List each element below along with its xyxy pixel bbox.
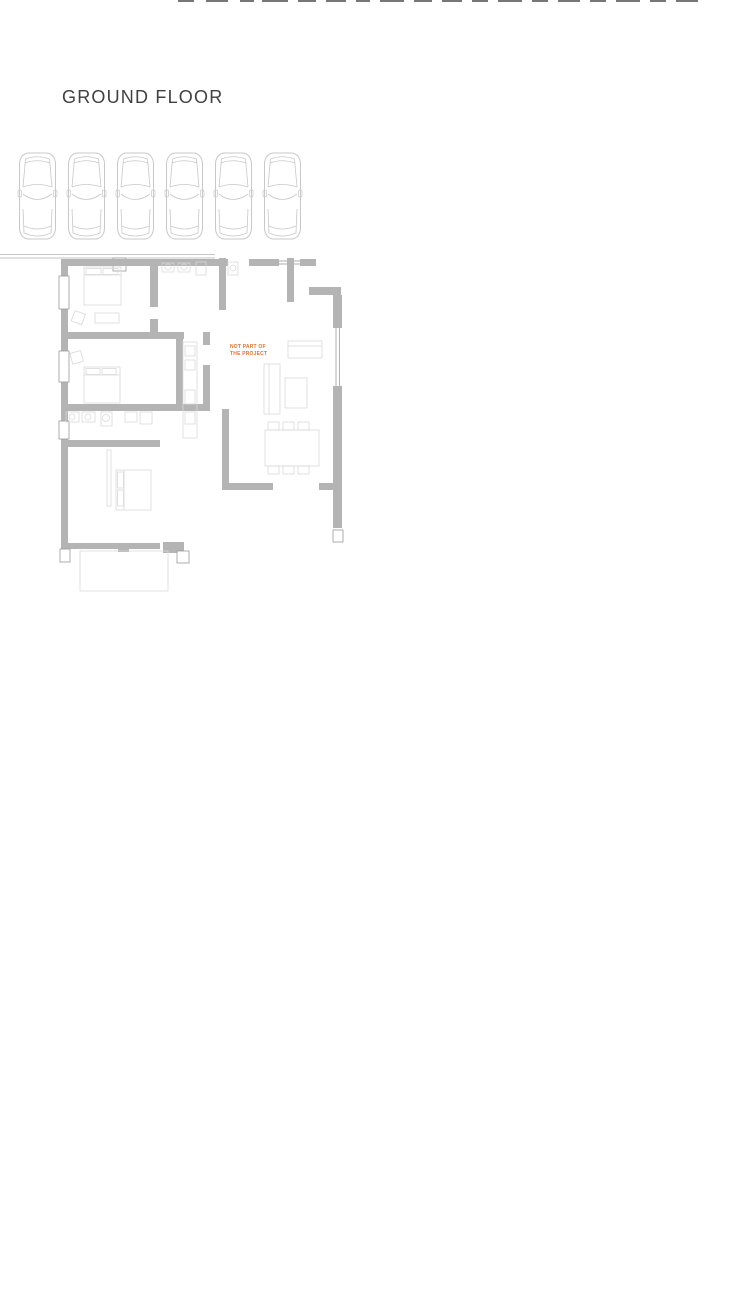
svg-text:THE PROJECT: THE PROJECT — [230, 351, 267, 357]
svg-text:NOT PART OF: NOT PART OF — [230, 344, 266, 350]
svg-text:GROUND FLOOR: GROUND FLOOR — [62, 87, 223, 107]
